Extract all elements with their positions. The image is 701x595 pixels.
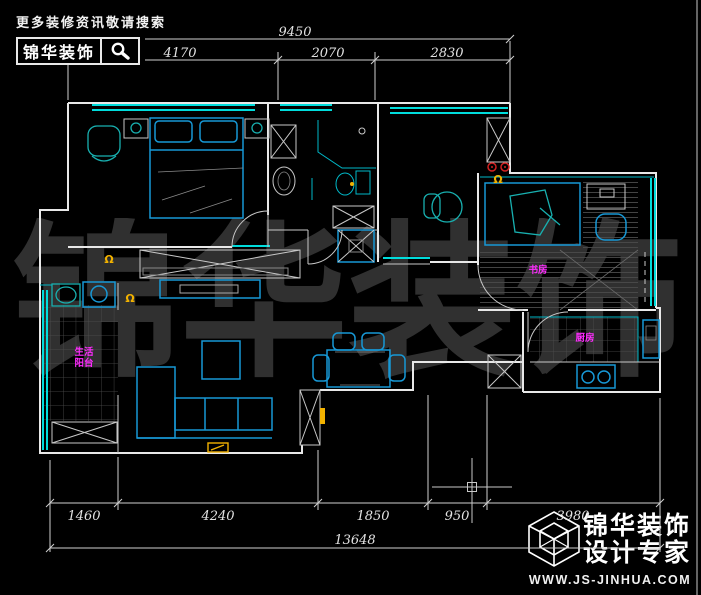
dim-top-seg2: 2070	[310, 46, 344, 61]
dim-bot-seg3: 1850	[356, 509, 389, 524]
brand-search-box: 锦华装饰	[16, 37, 166, 65]
door-handle-mark	[320, 408, 325, 424]
nightstands	[124, 119, 269, 138]
svg-text:Ω: Ω	[493, 173, 503, 186]
footer-website: WWW.JS-JINHUA.COM	[525, 573, 695, 587]
dim-bot-seg1: 1460	[67, 509, 100, 524]
header-branding: 更多装修资讯敬请搜索 锦华装饰	[16, 12, 166, 65]
dim-bot-seg4: 950	[445, 509, 470, 524]
search-hint-text: 更多装修资讯敬请搜索	[16, 12, 166, 31]
footer-branding: 锦华装饰 设计专家 WWW.JS-JINHUA.COM	[525, 509, 695, 587]
footer-brand-line1: 锦华装饰	[583, 512, 691, 540]
watermark-text: 锦华装饰	[12, 218, 693, 408]
cad-crosshair-cursor[interactable]	[432, 458, 512, 523]
brand-name-box: 锦华装饰	[16, 37, 102, 65]
dim-bot-total: 13648	[334, 533, 375, 548]
dim-top-seg3: 2830	[429, 46, 463, 61]
magnifier-icon	[100, 37, 140, 65]
bed	[150, 118, 243, 218]
threshold-mark	[208, 443, 228, 452]
bedroom-chair	[88, 126, 120, 161]
footer-brand-line2: 设计专家	[583, 539, 691, 567]
cad-floorplan-screenshot: 锦华装饰 更多装修资讯敬请搜索 锦华装饰	[0, 0, 701, 595]
dim-bot-seg2: 4240	[200, 509, 234, 524]
bathroom-fixtures	[273, 120, 376, 200]
dim-top-seg1: 4170	[162, 46, 196, 61]
cube-logo-icon	[525, 509, 583, 569]
electrical-symbols	[488, 163, 509, 171]
dim-top-total: 9450	[278, 25, 311, 40]
